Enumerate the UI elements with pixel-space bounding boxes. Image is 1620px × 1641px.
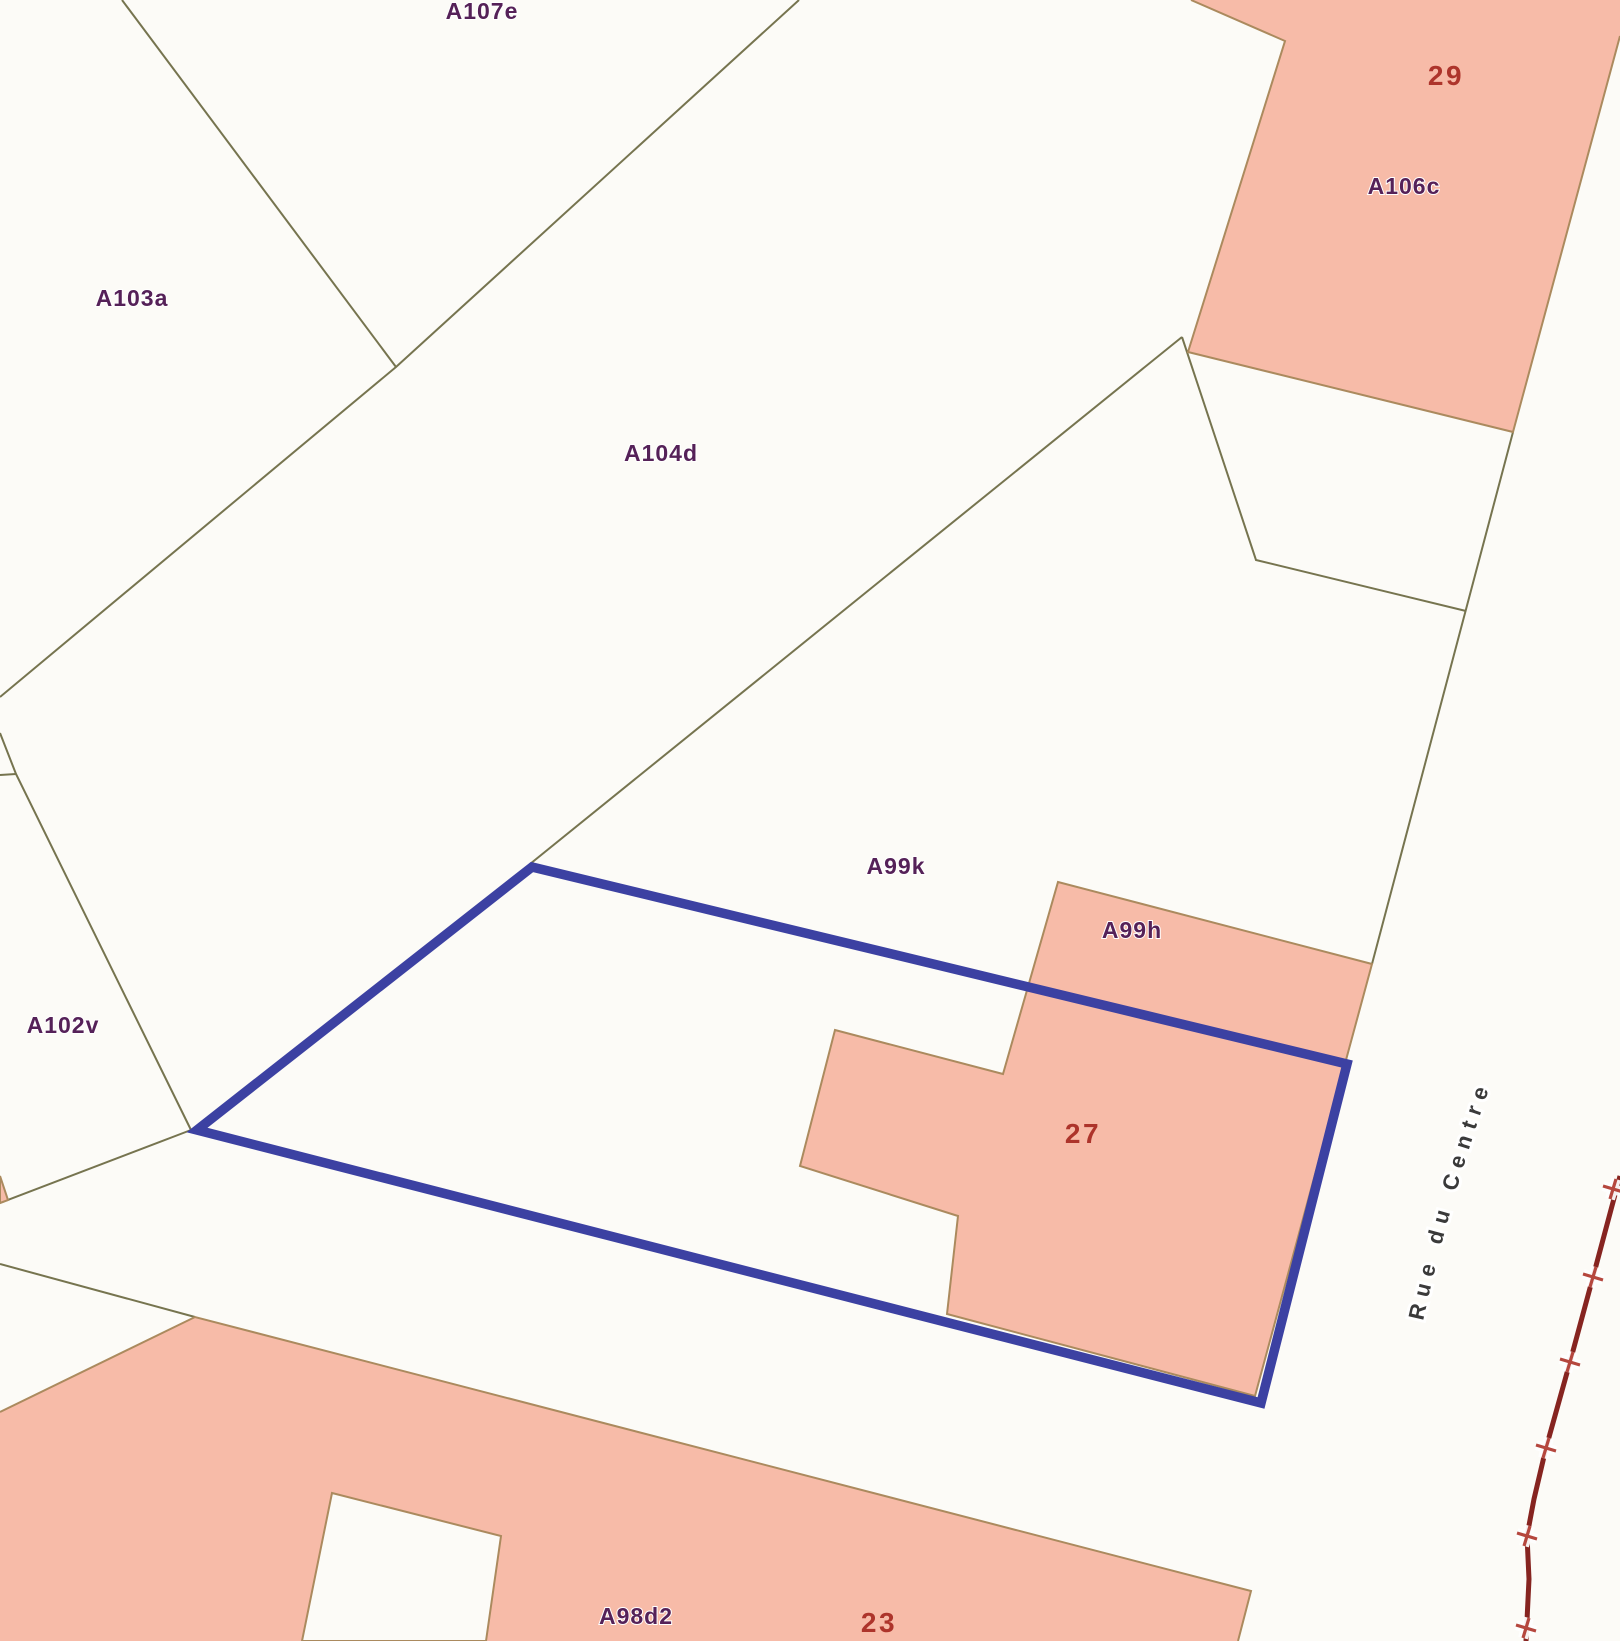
svg-text:A107e: A107e [446,0,519,24]
svg-text:A104d: A104d [624,440,698,466]
svg-text:29: 29 [1428,60,1464,91]
svg-text:A98d2: A98d2 [599,1603,673,1629]
svg-text:A106c: A106c [1368,173,1441,199]
svg-text:A99h: A99h [1102,917,1162,943]
svg-text:A102v: A102v [27,1012,100,1038]
svg-text:A99k: A99k [867,853,926,879]
svg-text:27: 27 [1065,1118,1101,1149]
svg-text:23: 23 [861,1607,897,1638]
svg-text:A103a: A103a [96,285,169,311]
